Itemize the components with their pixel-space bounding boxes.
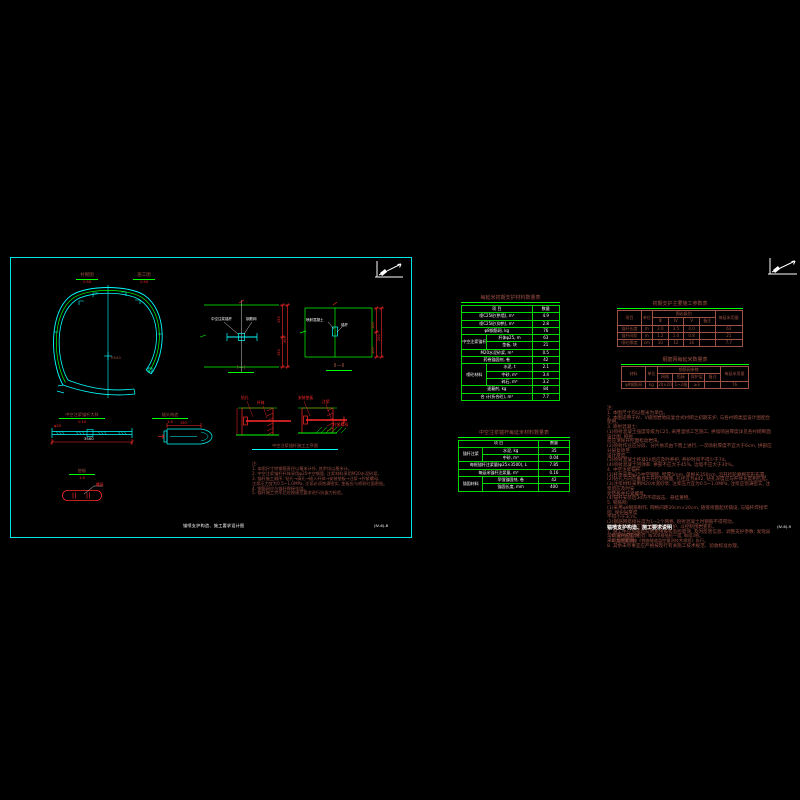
table-cell: 4.0 xyxy=(684,325,700,332)
right-sheet-footer-title: 锚喷支护构造、施工要求说明 xyxy=(607,524,672,531)
table-cell: 0.04 xyxy=(538,455,569,462)
table-cell: φ8钢筋网 xyxy=(622,381,646,388)
table-cell: 单位 xyxy=(641,311,652,326)
table-cell: 喷砼厚度 xyxy=(618,340,642,347)
section1-dim: 150 xyxy=(277,349,281,356)
anchor-head-detail xyxy=(158,423,212,444)
table-cell: φ8钢筋网, kg xyxy=(462,327,533,334)
right-footer-notes: ① 锚杆抗拔力检验: 每300根抽检一组, 每组3根。 ② 监控量测按《铁路隧道… xyxy=(611,533,708,544)
table-cell: 12 xyxy=(668,340,684,347)
table-cell: 76 xyxy=(532,327,559,334)
table-cell: 1.2 xyxy=(653,332,669,339)
section-1-1-figure xyxy=(200,300,290,372)
section2-label-shotcrete: 喷射混凝土 xyxy=(306,318,324,322)
table-cell: M20水泥砂浆, m³ xyxy=(462,349,533,356)
scale-icon-left xyxy=(375,261,403,277)
anchor-detail-scale: 1:10 xyxy=(59,420,105,425)
pad-plate-detail xyxy=(63,486,104,501)
section2-title: Ⅱ—Ⅱ xyxy=(326,363,352,371)
table-matA-title: 每延米初期支护材料数量表 xyxy=(461,295,560,303)
table-cell: 42 xyxy=(532,357,559,364)
cad-linework xyxy=(0,0,800,800)
table-cell: 0.8 xyxy=(684,332,700,339)
table-paramD: 材料单位钢筋网参数每延米用量网格搭接保护层备注φ8钢筋网kg20×201~2格≥… xyxy=(621,366,749,389)
table-cell: 网格 xyxy=(657,374,673,381)
table-cell: 中砂, m³ xyxy=(483,455,539,462)
table-cell: 84 xyxy=(532,386,559,393)
cad-viewport: { "palette":{"cyan":"#00ffff","green":"#… xyxy=(0,0,800,800)
table-cell: 中空注浆锚杆 xyxy=(462,335,487,350)
section1-label-anchor: 中空注浆锚杆 xyxy=(211,317,232,321)
table-cell: 药卷锚固剂, 卷 xyxy=(462,357,533,364)
table-cell: 杆体φ25, m xyxy=(487,335,532,342)
table-cell: 16 xyxy=(684,340,700,347)
table-cell: 喷C25砼(拱墙), m³ xyxy=(462,313,533,320)
table-cell: 3.0 xyxy=(653,325,669,332)
pad-detail-title: 垫板 xyxy=(69,468,95,475)
table-cell: 锚杆长度 xyxy=(618,325,642,332)
table-cell xyxy=(705,381,721,388)
table-cell: 每延米锚杆注浆量, m³ xyxy=(459,469,539,476)
table-cell: 合 计(折合砼), m³ xyxy=(462,393,533,400)
step2-label-plate: 安装垫板 xyxy=(298,396,313,401)
table-cell: m xyxy=(641,325,652,332)
table-cell: 钢筋网参数 xyxy=(657,367,721,374)
table-cell: 76 xyxy=(721,381,749,388)
table-cell xyxy=(699,332,715,339)
table-cell: 21 xyxy=(715,332,743,339)
table-cell: 63 xyxy=(532,335,559,342)
table-cell: 围岩级别 xyxy=(653,311,716,318)
table-cell: 碎石, m³ xyxy=(487,378,532,385)
anchor-detail-title: 中空注浆锚杆大样 xyxy=(59,412,105,419)
left-sheet-title: 锚喷支护构造、施工要求设计图 xyxy=(183,523,244,528)
table-cell: 20×20 xyxy=(657,381,673,388)
table-cell: Ⅳ xyxy=(668,318,684,325)
right-sheet-number: (Ⅳ-6)-9 xyxy=(777,525,791,530)
head-detail-title: 锚头构造 xyxy=(152,412,188,419)
table-paramC-title: 初期支护主要施工参数表 xyxy=(617,301,743,309)
table-cell: 63 xyxy=(715,325,743,332)
table-cell: 喷砼材料 xyxy=(462,364,487,386)
table-cell: 中砂, m³ xyxy=(487,371,532,378)
table-cell: 锚固材料 xyxy=(459,476,483,491)
table-cell: 项 目 xyxy=(459,440,539,447)
half-section-scale-left: 1:50 xyxy=(76,280,98,285)
section2-label-bolt: 锚杆 xyxy=(341,323,348,327)
table-paramD-title: 钢筋网每延米数量表 xyxy=(621,357,749,365)
section1-title: Ⅰ—Ⅰ xyxy=(228,365,254,373)
table-cell: 21 xyxy=(532,342,559,349)
table-cell: 锚固长度, mm xyxy=(483,484,539,491)
table-cell: 速凝剂, kg xyxy=(462,386,533,393)
table-cell: 10 xyxy=(653,340,669,347)
table-cell: 数量 xyxy=(538,440,569,447)
table-matB: 项 目数量锚杆注浆水泥, kg35中砂, m³0.04每根锚杆注浆量(φ25×3… xyxy=(458,440,570,492)
table-cell: 保护层 xyxy=(689,374,705,381)
table-cell: 1.0 xyxy=(668,332,684,339)
left-sheet-number: (Ⅳ-6)-8 xyxy=(374,524,388,529)
step2-label-nut: 拧紧螺母 xyxy=(333,423,348,428)
table-cell: 35 xyxy=(538,447,569,454)
table-cell: 1~2格 xyxy=(673,381,689,388)
table-cell: 项目 xyxy=(618,311,642,326)
table-cell: 7.7 xyxy=(715,340,743,347)
tunnel-cross-section xyxy=(53,285,162,398)
table-cell: 3.4 xyxy=(532,371,559,378)
half-section-scale-right: 1:50 xyxy=(133,280,155,285)
construction-steps-figures xyxy=(236,401,347,435)
table-cell: 喷C25砼(仰拱), m³ xyxy=(462,320,533,327)
section2-dim: 100 xyxy=(371,347,375,354)
left-notes: 注: 1. 本图尺寸除钢筋直径以毫米计外, 其余均以厘米计。 2. 中空注浆锚杆… xyxy=(252,462,404,496)
table-cell: 早强锚固剂, 卷 xyxy=(483,476,539,483)
table-cell: 42 xyxy=(538,476,569,483)
table-cell: 2.1 xyxy=(532,364,559,371)
table-cell: 每延米用量 xyxy=(715,311,743,326)
tunnel-radius-label: R540 xyxy=(111,356,121,361)
section1-label-mesh: 钢筋网 xyxy=(246,317,257,321)
section2-dim: 200 xyxy=(377,334,381,341)
table-cell: 水泥, t xyxy=(487,364,532,371)
table-cell: 400 xyxy=(538,484,569,491)
table-matA: 项 目数量喷C25砼(拱墙), m³4.9喷C25砼(仰拱), m³2.8φ8钢… xyxy=(461,305,560,401)
table-cell: 锚杆间距 xyxy=(618,332,642,339)
section1-dim: 300 xyxy=(283,336,287,343)
table-cell: 4.9 xyxy=(532,313,559,320)
table-cell: 0.16 xyxy=(538,469,569,476)
table-cell: 3.2 xyxy=(532,378,559,385)
table-cell: 垫板, 块 xyxy=(487,342,532,349)
table-cell: 数量 xyxy=(532,306,559,313)
table-cell: 项 目 xyxy=(462,306,533,313)
section1-dim: 150 xyxy=(277,316,281,323)
steps-title: 中空注浆锚杆施工工序图 xyxy=(252,443,338,450)
scale-icon-right xyxy=(768,258,797,274)
pad-detail-label: 螺母 xyxy=(96,483,104,488)
table-cell: 备注 xyxy=(699,318,715,325)
table-cell: m xyxy=(641,332,652,339)
table-cell: 7.7 xyxy=(532,393,559,400)
table-cell: 0.5 xyxy=(532,349,559,356)
table-paramC: 项目单位围岩级别每延米用量ⅢⅣⅤ备注锚杆长度m3.03.54.063锚杆间距m1… xyxy=(617,310,743,347)
table-cell xyxy=(699,340,715,347)
table-cell: Ⅴ xyxy=(684,318,700,325)
table-matB-title: 中空注浆锚杆每延米材料数量表 xyxy=(458,430,570,438)
table-cell: kg xyxy=(646,381,657,388)
step2-label-grout: 注浆 xyxy=(322,400,330,405)
section2-dim: 100 xyxy=(371,322,375,329)
table-cell: 锚杆注浆 xyxy=(459,447,483,462)
table-cell: Ⅲ xyxy=(653,318,669,325)
table-cell: 水泥, kg xyxy=(483,447,539,454)
step1-label-drill: 钻孔 xyxy=(241,396,249,401)
table-cell: 材料 xyxy=(622,367,646,382)
table-cell: 2.8 xyxy=(532,320,559,327)
table-cell xyxy=(699,325,715,332)
table-cell: 搭接 xyxy=(673,374,689,381)
table-cell: cm xyxy=(641,340,652,347)
table-cell: 单位 xyxy=(646,367,657,382)
anchor-bar-label: φ25 xyxy=(54,424,61,429)
head-detail-dim: 150 xyxy=(180,421,187,425)
pad-detail-scale: 1:5 xyxy=(69,476,95,481)
anchor-length-dim: 3500 xyxy=(84,437,94,442)
table-cell: 3.5 xyxy=(668,325,684,332)
step1-label-rod: 杆体 xyxy=(257,401,265,406)
table-cell: ≥3 xyxy=(689,381,705,388)
table-cell: 每延米用量 xyxy=(721,367,749,382)
table-cell: 每根锚杆注浆量(φ25×3500), L xyxy=(459,462,539,469)
table-cell: 备注 xyxy=(705,374,721,381)
table-cell: 7.85 xyxy=(538,462,569,469)
